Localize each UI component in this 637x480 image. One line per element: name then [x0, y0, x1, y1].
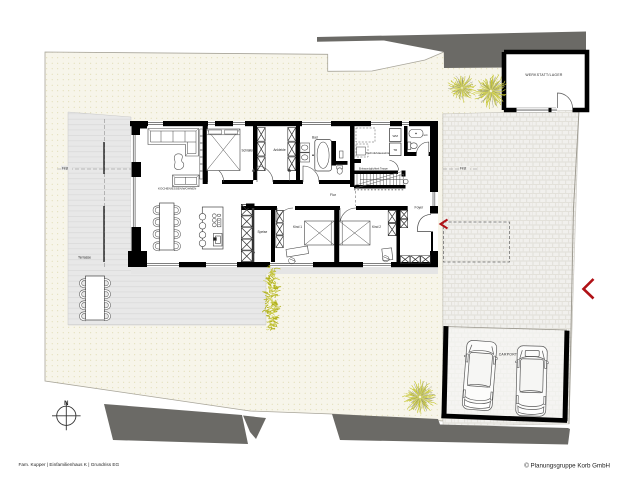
svg-text:Kind 1: Kind 1 — [293, 225, 302, 229]
svg-text:CARPORT: CARPORT — [499, 353, 518, 357]
svg-text:N: N — [64, 401, 68, 407]
svg-text:Kind 2: Kind 2 — [372, 225, 381, 229]
svg-text:WM: WM — [393, 134, 399, 138]
svg-text:Bad: Bad — [312, 136, 318, 140]
svg-text:Foyer: Foyer — [415, 206, 425, 210]
svg-text:First: First — [460, 166, 466, 170]
svg-text:Fam. Kupper | Einfamilienhaus: Fam. Kupper | Einfamilienhaus K | Grundr… — [19, 462, 120, 467]
svg-text:Ankleide: Ankleide — [273, 148, 285, 152]
svg-text:WERKSTATT/LAGER: WERKSTATT/LAGER — [525, 73, 563, 77]
svg-text:Schlafen: Schlafen — [242, 149, 255, 153]
svg-text:wC: wC — [424, 133, 428, 137]
svg-text:© Planungsgruppe Korb GmbH: © Planungsgruppe Korb GmbH — [524, 463, 610, 470]
svg-text:Speise: Speise — [258, 230, 268, 234]
svg-text:KOCHEN/ESSEN/WOHNEN: KOCHEN/ESSEN/WOHNEN — [158, 187, 196, 191]
svg-text:Flur: Flur — [330, 193, 337, 197]
svg-text:Einbaumöglichkeit Treppe: Einbaumöglichkeit Treppe — [359, 168, 388, 171]
svg-text:Terrasse: Terrasse — [78, 256, 91, 260]
svg-text:First: First — [62, 166, 68, 170]
